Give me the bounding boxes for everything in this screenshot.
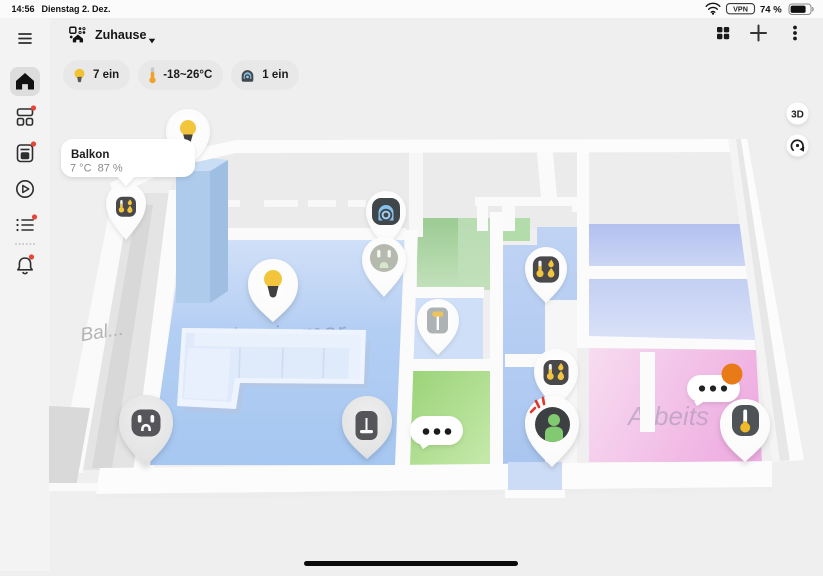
svg-text:Wohnzimmer: Wohnzimmer xyxy=(192,316,348,354)
svg-text:Balkon: Balkon xyxy=(71,149,109,161)
svg-text:Arbeits: Arbeits xyxy=(626,401,709,431)
svg-text:74 %: 74 % xyxy=(760,5,782,16)
svg-text:VPN: VPN xyxy=(733,4,748,13)
svg-text:7 °C 87 %: 7 °C 87 % xyxy=(70,163,123,175)
svg-text:3D: 3D xyxy=(791,110,804,121)
svg-text:Bal...: Bal... xyxy=(79,319,125,347)
